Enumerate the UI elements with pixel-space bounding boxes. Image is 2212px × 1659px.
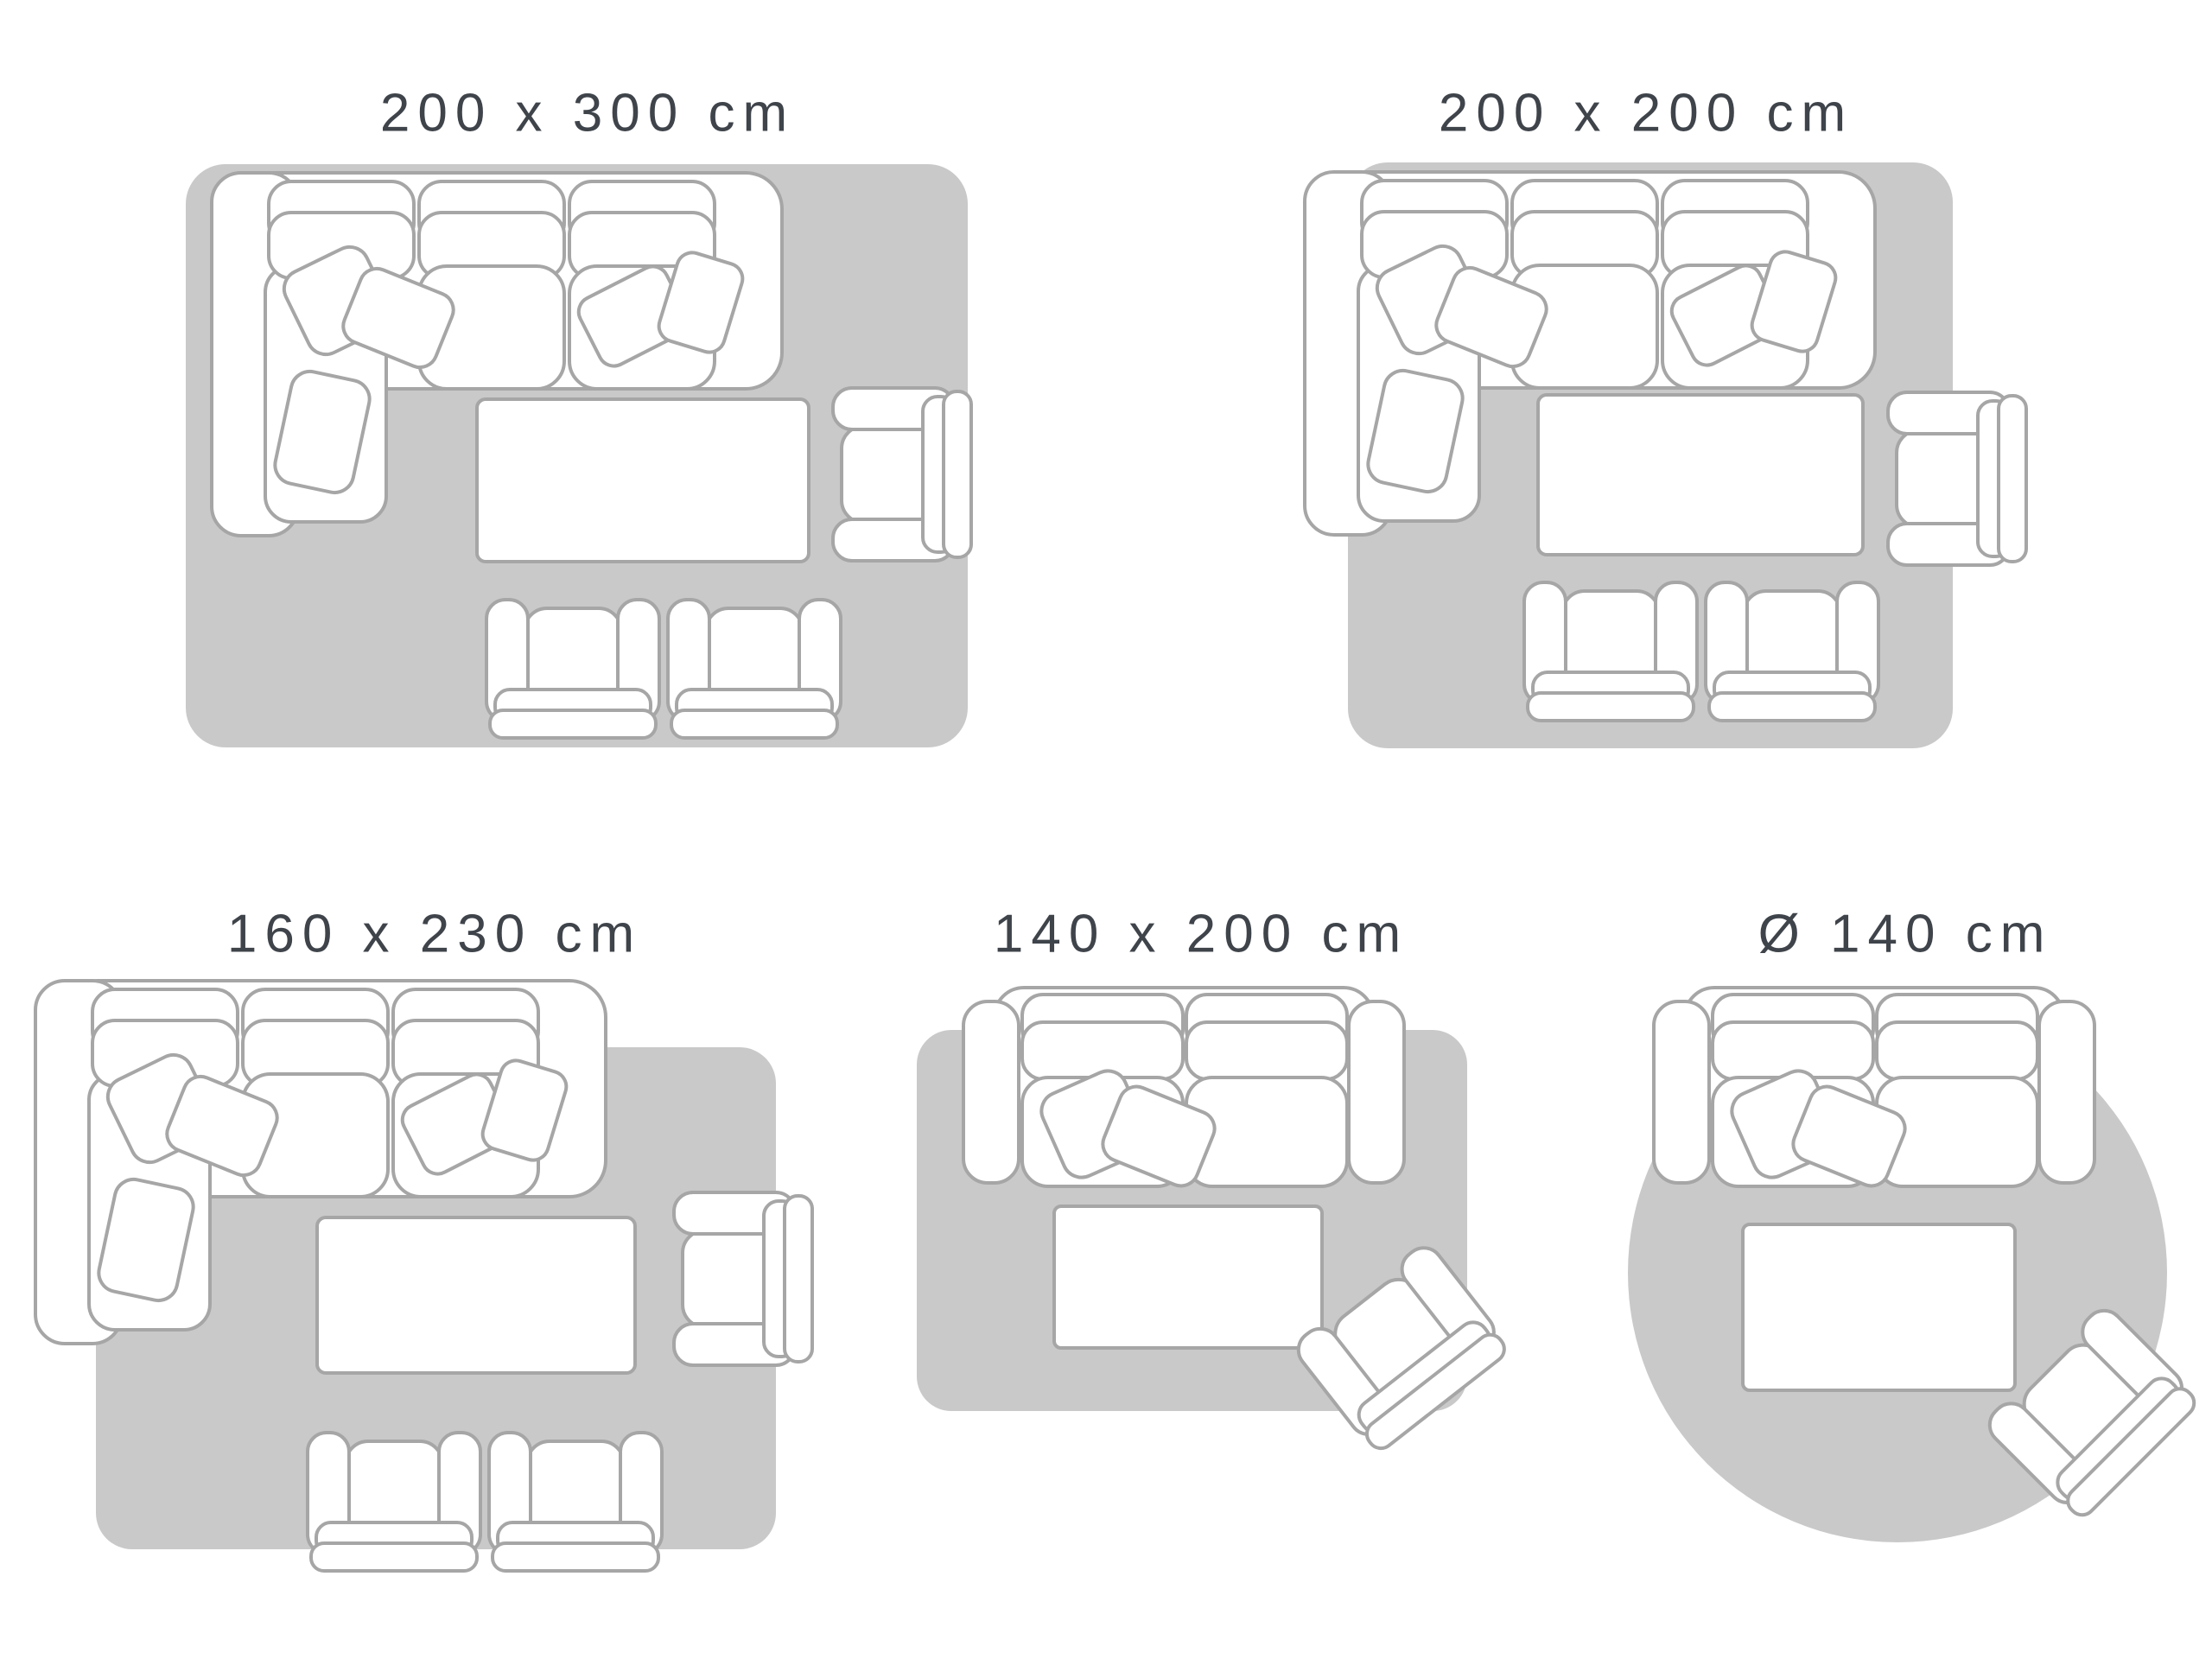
- armchair-icon: [1888, 392, 2026, 565]
- two-seater-sofa-icon: [1654, 988, 2094, 1191]
- layout-illustration-200x200: [1279, 147, 2039, 778]
- layout-illustration-200x300: [130, 147, 1011, 778]
- size-label-160x230: 160 x 230 cm: [227, 904, 642, 965]
- armchair-icon: [489, 1433, 662, 1571]
- size-label-140x200: 140 x 200 cm: [994, 904, 1408, 965]
- layout-illustration-diameter140: [1581, 976, 2212, 1607]
- armchair-icon: [1706, 582, 1878, 721]
- layout-illustration-160x230: [26, 976, 829, 1607]
- armchair-icon: [486, 600, 659, 738]
- size-label-diameter140: Ø 140 cm: [1758, 904, 2053, 965]
- armchair-icon: [668, 600, 841, 738]
- coffee-table-icon: [1743, 1224, 2015, 1390]
- coffee-table-icon: [317, 1217, 635, 1373]
- two-seater-sofa-icon: [963, 988, 1404, 1191]
- armchair-icon: [833, 388, 971, 561]
- size-label-200x200: 200 x 200 cm: [1439, 83, 1853, 144]
- rug-size-guide-page: { "page": { "background": "#ffffff", "de…: [0, 0, 2212, 1659]
- size-label-200x300: 200 x 300 cm: [380, 83, 795, 144]
- coffee-table-icon: [477, 399, 809, 562]
- coffee-table-icon: [1054, 1206, 1322, 1348]
- armchair-icon: [674, 1192, 812, 1365]
- coffee-table-icon: [1538, 395, 1863, 555]
- armchair-icon: [1524, 582, 1697, 721]
- layout-illustration-140x200: [899, 976, 1547, 1486]
- armchair-icon: [308, 1433, 480, 1571]
